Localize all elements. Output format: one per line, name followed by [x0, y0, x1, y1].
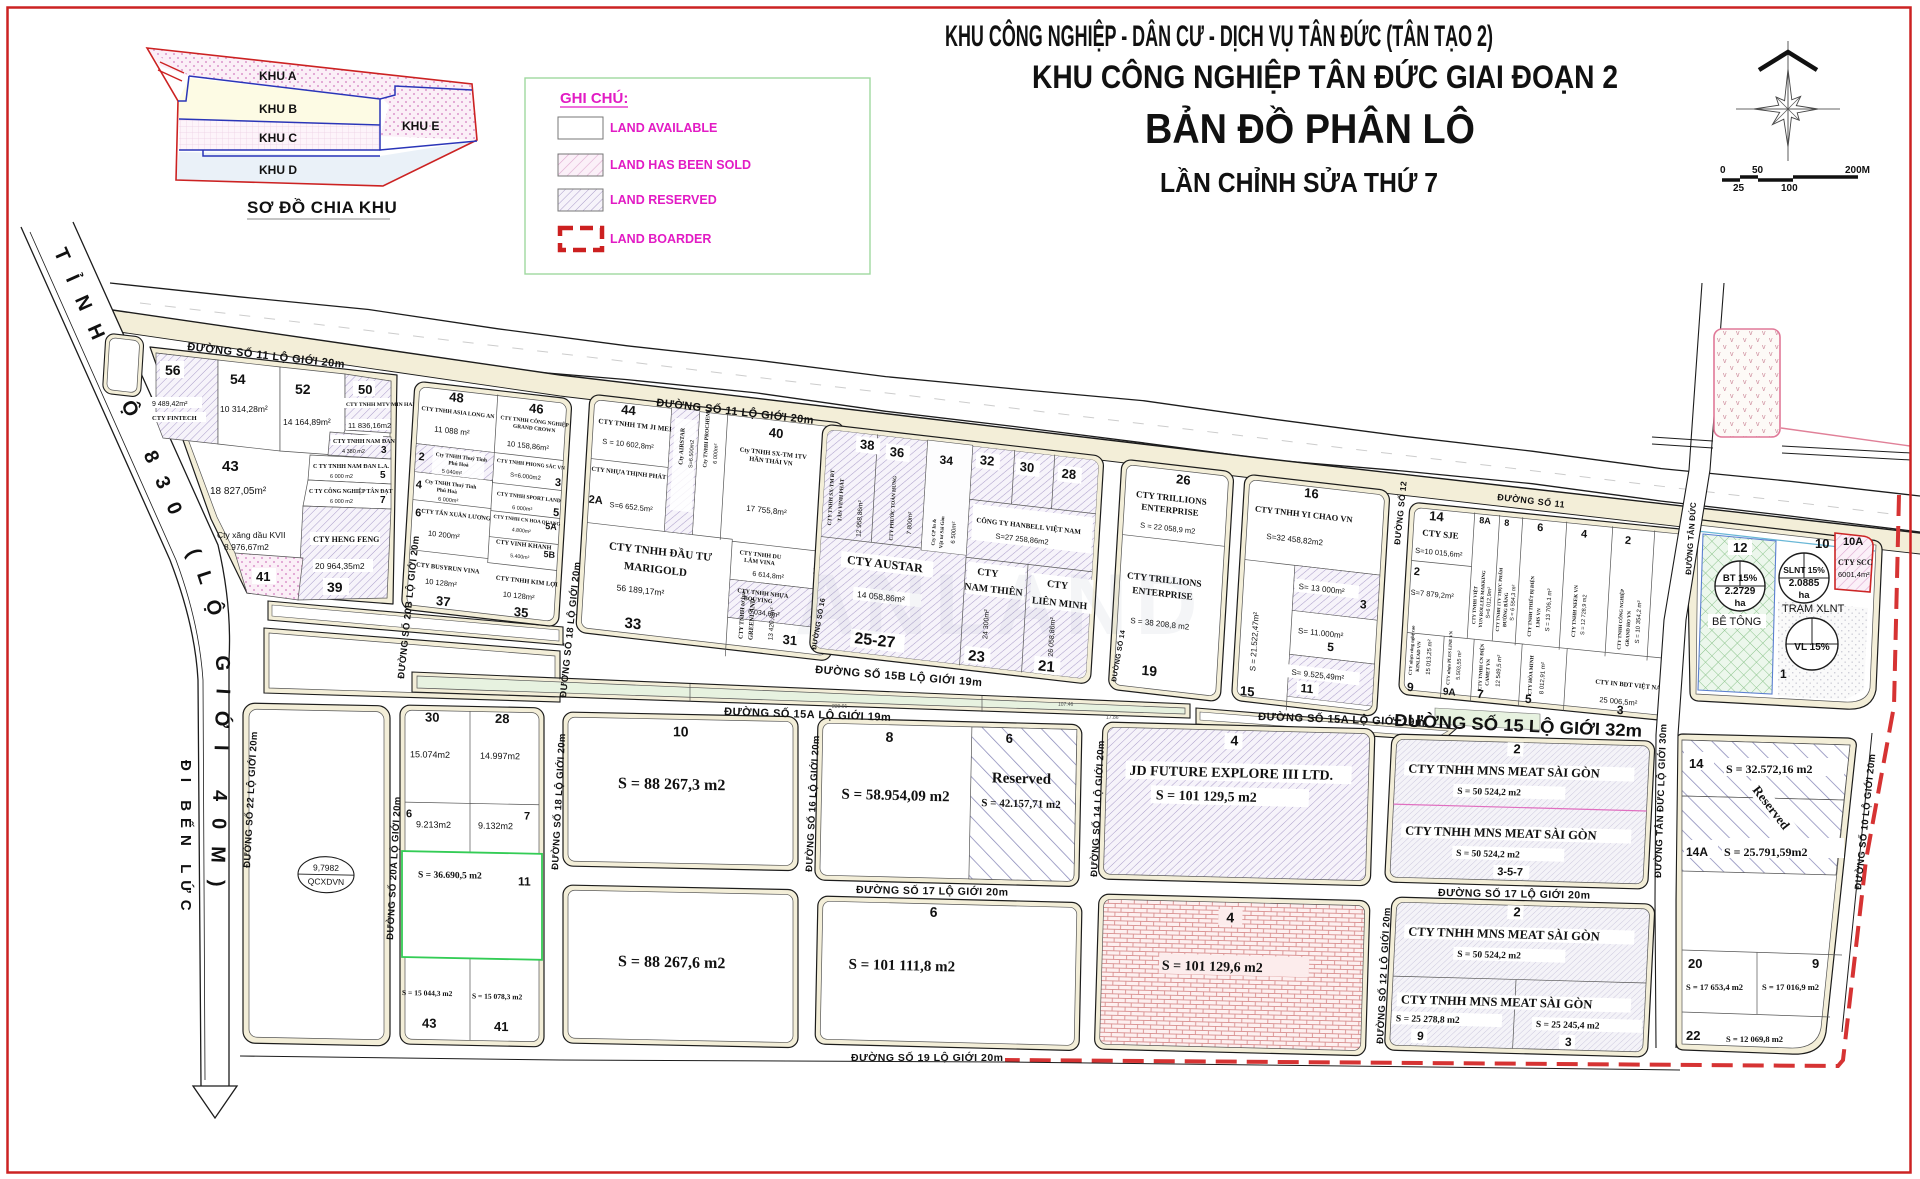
svg-text:5: 5	[553, 507, 560, 520]
svg-text:2: 2	[1625, 535, 1632, 548]
svg-text:10: 10	[673, 723, 689, 739]
svg-text:14: 14	[1429, 508, 1445, 524]
svg-text:S = 25.791,59m2: S = 25.791,59m2	[1724, 845, 1808, 859]
svg-text:3: 3	[555, 477, 562, 490]
svg-text:11: 11	[518, 874, 531, 888]
svg-text:ĐƯỜNG SỐ 19 LỘ GIỚI 20m: ĐƯỜNG SỐ 19 LỘ GIỚI 20m	[851, 1050, 1004, 1064]
svg-text:3-5-7: 3-5-7	[1497, 866, 1523, 879]
svg-text:ha: ha	[1798, 590, 1810, 601]
svg-text:21: 21	[1038, 657, 1056, 676]
svg-text:ha: ha	[1734, 598, 1746, 609]
svg-text:KHU CÔNG NGHIỆP TÂN ĐỨC GIAI Đ: KHU CÔNG NGHIỆP TÂN ĐỨC GIAI ĐOẠN 2	[1032, 59, 1618, 95]
svg-text:S = 101 129,5 m2: S = 101 129,5 m2	[1156, 788, 1257, 806]
svg-text:LAND HAS BEEN SOLD: LAND HAS BEEN SOLD	[610, 158, 751, 172]
svg-text:S = 42.157,71 m2: S = 42.157,71 m2	[981, 797, 1061, 811]
svg-text:37: 37	[436, 593, 451, 610]
svg-text:41: 41	[256, 569, 270, 584]
svg-text:7: 7	[1477, 687, 1485, 702]
svg-text:S = 36.690,5 m2: S = 36.690,5 m2	[418, 870, 482, 881]
svg-text:S = 25 245,4 m2: S = 25 245,4 m2	[1536, 1020, 1600, 1032]
svg-text:GHI CHÚ:: GHI CHÚ:	[560, 89, 628, 107]
svg-text:30: 30	[1019, 459, 1034, 476]
svg-text:9: 9	[1417, 1029, 1425, 1043]
svg-text:6: 6	[1006, 731, 1014, 746]
svg-text:SLNT 15%: SLNT 15%	[1783, 565, 1825, 575]
svg-text:QCXDVN: QCXDVN	[308, 876, 344, 887]
svg-text:28: 28	[495, 711, 509, 726]
svg-text:KHU A: KHU A	[259, 69, 297, 83]
svg-text:CTY HENG FENG: CTY HENG FENG	[313, 535, 379, 544]
svg-text:6 000 m2: 6 000 m2	[330, 474, 353, 480]
svg-text:56: 56	[165, 362, 181, 378]
svg-text:34: 34	[939, 453, 953, 469]
svg-text:9: 9	[1812, 956, 1819, 971]
svg-text:38: 38	[860, 436, 875, 453]
svg-text:S = 32.572,16 m2: S = 32.572,16 m2	[1726, 762, 1813, 776]
svg-text:LAND BOARDER: LAND BOARDER	[610, 232, 711, 246]
svg-text:2: 2	[1513, 741, 1521, 756]
svg-text:S = 88 267,3 m2: S = 88 267,3 m2	[618, 775, 725, 794]
svg-text:5: 5	[380, 470, 386, 481]
svg-text:4: 4	[1226, 909, 1234, 925]
svg-text:17.86: 17.86	[1106, 715, 1119, 721]
svg-text:KHU C: KHU C	[259, 131, 297, 145]
svg-text:TRẠM XLNT: TRẠM XLNT	[1782, 603, 1845, 615]
svg-text:14.997m2: 14.997m2	[480, 751, 520, 762]
svg-text:15: 15	[1240, 683, 1255, 700]
svg-text:14: 14	[1689, 756, 1704, 771]
svg-text:KHU E: KHU E	[402, 119, 439, 133]
svg-text:15.074m2: 15.074m2	[410, 749, 450, 760]
svg-text:CTY FINTECH: CTY FINTECH	[152, 415, 197, 422]
svg-text:S = 15 078,3 m2: S = 15 078,3 m2	[472, 991, 523, 1001]
svg-text:11: 11	[1300, 681, 1314, 696]
svg-text:9: 9	[1407, 680, 1415, 695]
svg-text:6: 6	[930, 904, 938, 920]
svg-text:4 380 m2: 4 380 m2	[342, 449, 365, 455]
svg-text:6: 6	[1537, 522, 1544, 535]
svg-text:BẢN ĐỒ PHÂN LÔ: BẢN ĐỒ PHÂN LÔ	[1145, 104, 1475, 152]
svg-text:10A: 10A	[1843, 536, 1863, 548]
svg-text:9,7982: 9,7982	[313, 862, 339, 873]
svg-text:22: 22	[1686, 1028, 1700, 1043]
svg-text:48: 48	[449, 389, 464, 406]
svg-text:54: 54	[230, 371, 246, 387]
svg-text:S = 25 278,8 m2: S = 25 278,8 m2	[1396, 1014, 1460, 1026]
svg-text:9A: 9A	[1443, 686, 1456, 698]
svg-text:2: 2	[418, 451, 425, 464]
svg-text:9.132m2: 9.132m2	[478, 821, 513, 832]
svg-text:200M: 200M	[1845, 165, 1870, 176]
svg-text:CTY TNHH MTV MIN HANG: CTY TNHH MTV MIN HANG	[346, 402, 421, 408]
svg-text:S = 50 524,2 m2: S = 50 524,2 m2	[1457, 950, 1521, 962]
svg-text:100: 100	[1781, 183, 1798, 194]
svg-text:50: 50	[358, 382, 372, 397]
svg-text:LẦN CHỈNH SỬA THỨ 7: LẦN CHỈNH SỬA THỨ 7	[1160, 166, 1438, 198]
svg-text:CTY SCC: CTY SCC	[1838, 558, 1873, 567]
svg-text:Cty xăng dầu KVII: Cty xăng dầu KVII	[217, 530, 286, 540]
svg-text:18 827,05m²: 18 827,05m²	[210, 486, 267, 497]
svg-text:6: 6	[406, 808, 412, 820]
svg-text:VL 15%: VL 15%	[1794, 642, 1829, 653]
svg-text:LAND AVAILABLE: LAND AVAILABLE	[610, 121, 717, 135]
svg-text:3: 3	[1616, 703, 1624, 718]
svg-text:LAND RESERVED: LAND RESERVED	[610, 193, 717, 207]
svg-text:36: 36	[889, 444, 904, 461]
svg-text:2.2729: 2.2729	[1725, 586, 1756, 597]
svg-text:3: 3	[1565, 1035, 1573, 1049]
svg-text:11 836,16m2: 11 836,16m2	[348, 421, 391, 430]
svg-text:2A: 2A	[588, 494, 603, 508]
svg-text:6 000 m2: 6 000 m2	[330, 499, 353, 505]
svg-text:44: 44	[621, 402, 637, 419]
svg-text:7 800m²: 7 800m²	[906, 512, 914, 536]
svg-text:3: 3	[381, 445, 387, 456]
svg-text:KHU CÔNG NGHIỆP - DÂN CƯ - DỊC: KHU CÔNG NGHIỆP - DÂN CƯ - DỊCH VỤ TÂN Đ…	[945, 19, 1493, 53]
svg-text:S = 101 111,8 m2: S = 101 111,8 m2	[848, 957, 955, 976]
svg-text:46: 46	[529, 400, 544, 417]
svg-text:7: 7	[380, 495, 386, 506]
svg-text:BÊ TÔNG: BÊ TÔNG	[1712, 615, 1761, 628]
svg-text:107.46: 107.46	[1058, 702, 1074, 708]
svg-text:230.91: 230.91	[832, 704, 848, 710]
svg-text:5: 5	[1327, 640, 1335, 655]
svg-text:ĐI BẾN LỨC: ĐI BẾN LỨC	[177, 760, 195, 918]
svg-text:4: 4	[1230, 732, 1238, 748]
svg-text:8.976,67m2: 8.976,67m2	[224, 542, 269, 552]
svg-text:S = 50 524,2 m2: S = 50 524,2 m2	[1456, 849, 1520, 861]
svg-text:20: 20	[1688, 956, 1702, 971]
svg-text:BT 15%: BT 15%	[1723, 573, 1758, 584]
svg-text:14A: 14A	[1686, 845, 1708, 859]
svg-text:16: 16	[1304, 485, 1319, 502]
svg-text:12: 12	[1733, 540, 1747, 555]
svg-text:50: 50	[1752, 165, 1764, 176]
svg-text:8: 8	[1504, 518, 1510, 528]
svg-text:1: 1	[1780, 667, 1787, 681]
svg-text:20 964,35m2: 20 964,35m2	[315, 561, 365, 571]
svg-text:KHU B: KHU B	[259, 102, 297, 116]
svg-text:S = 17 653,4 m2: S = 17 653,4 m2	[1686, 982, 1743, 992]
svg-text:6 000m²: 6 000m²	[713, 443, 720, 464]
svg-text:8A: 8A	[1479, 515, 1492, 526]
svg-text:ANLAND: ANLAND	[794, 557, 1205, 653]
svg-text:S = 101 129,6 m2: S = 101 129,6 m2	[1162, 959, 1263, 977]
svg-text:7: 7	[524, 810, 530, 822]
svg-text:28: 28	[1061, 466, 1076, 483]
svg-text:25: 25	[1733, 183, 1745, 194]
svg-text:0: 0	[1720, 165, 1726, 176]
svg-text:5: 5	[1525, 692, 1533, 707]
svg-text:S = 15 044,3 m2: S = 15 044,3 m2	[402, 988, 453, 998]
svg-text:S = 58.954,09 m2: S = 58.954,09 m2	[841, 787, 949, 806]
svg-text:26: 26	[1176, 471, 1191, 488]
svg-text:39: 39	[327, 579, 343, 595]
svg-text:2: 2	[1513, 904, 1521, 919]
svg-text:3: 3	[1360, 597, 1368, 612]
svg-text:19: 19	[1141, 662, 1158, 680]
svg-text:33: 33	[624, 615, 642, 634]
svg-text:30: 30	[425, 710, 439, 725]
svg-text:Reserved: Reserved	[992, 770, 1052, 787]
svg-text:43: 43	[422, 1015, 436, 1030]
svg-text:8: 8	[886, 729, 894, 745]
svg-text:SƠ ĐỒ CHIA KHU: SƠ ĐỒ CHIA KHU	[247, 198, 397, 217]
svg-text:10 314,28m²: 10 314,28m²	[220, 404, 268, 414]
svg-text:6001,4m²: 6001,4m²	[1838, 570, 1870, 579]
svg-text:2: 2	[1414, 566, 1421, 579]
svg-text:32: 32	[980, 452, 995, 469]
svg-text:C TY TNHH NAM ĐAN L.A.: C TY TNHH NAM ĐAN L.A.	[313, 464, 390, 470]
svg-text:2.0885: 2.0885	[1789, 578, 1820, 589]
svg-text:40: 40	[769, 425, 784, 442]
svg-text:35: 35	[514, 604, 529, 621]
svg-text:10: 10	[1815, 536, 1829, 551]
svg-text:52: 52	[295, 381, 311, 397]
svg-text:C TY CÔNG NGHIỆP TÂN ĐẠT: C TY CÔNG NGHIỆP TÂN ĐẠT	[309, 487, 393, 495]
svg-text:S = 12 069,8 m2: S = 12 069,8 m2	[1726, 1034, 1783, 1044]
svg-text:43: 43	[222, 458, 239, 475]
svg-text:S = 88 267,6 m2: S = 88 267,6 m2	[618, 953, 725, 972]
svg-text:S = 17 016,9 m2: S = 17 016,9 m2	[1762, 982, 1819, 992]
svg-text:9.213m2: 9.213m2	[416, 819, 451, 830]
svg-text:9 489,42m²: 9 489,42m²	[152, 401, 188, 408]
svg-text:14 164,89m²: 14 164,89m²	[283, 417, 331, 427]
svg-text:KHU D: KHU D	[259, 163, 297, 177]
svg-text:S = 50 524,2 m2: S = 50 524,2 m2	[1457, 787, 1521, 799]
svg-text:41: 41	[494, 1019, 508, 1034]
